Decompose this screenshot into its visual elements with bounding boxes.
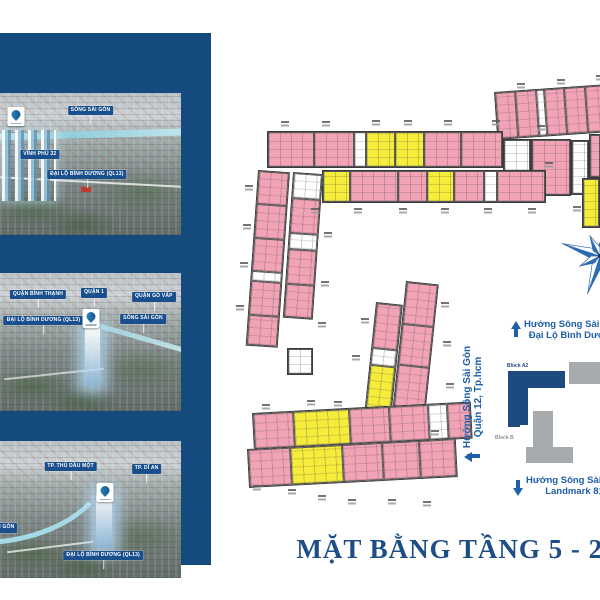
project-tower-render	[85, 328, 99, 386]
unit-label-mark	[596, 75, 600, 81]
unit-label-mark	[444, 120, 452, 126]
map-label-pill: SÔNG SÀI GÒN	[120, 314, 166, 324]
unit-label-mark	[321, 281, 329, 287]
unit-cell	[427, 171, 454, 202]
map-label-pill: SÔNG SÀI GÒN	[0, 523, 17, 533]
unit-label-mark	[388, 499, 396, 505]
map-label-pill: TP. THỦ DẦU MỘT	[44, 462, 97, 472]
unit-label-mark	[484, 208, 492, 214]
map-label-pill: SÔNG SÀI GÒN	[68, 106, 114, 116]
arrow-left-icon	[467, 454, 480, 458]
core-cell	[288, 349, 312, 374]
map-label-pill: QUẬN BÌNH THẠNH	[10, 290, 66, 300]
floorplan-wing	[322, 170, 546, 203]
minimap-label-block-b: Block B	[495, 435, 514, 441]
aerial-photo-river: SÔNG SÀI GÒNVĨNH PHÚ 32ĐẠI LỘ BÌNH DƯƠNG…	[0, 93, 181, 235]
unit-label-mark	[354, 208, 362, 214]
unit-label-mark	[318, 495, 326, 501]
unit-label-mark	[399, 208, 407, 214]
unit-cell	[461, 132, 502, 167]
direction-text: Hướng Sông Sài Gòn	[524, 319, 600, 330]
map-label-pill: QUẬN 1	[81, 288, 107, 298]
unit-cell	[366, 132, 395, 167]
unit-label-mark	[236, 305, 244, 311]
unit-cell	[497, 171, 545, 202]
unit-cell	[382, 441, 422, 480]
unit-cell	[248, 448, 292, 487]
unit-label-mark	[372, 120, 380, 126]
unit-cell	[252, 238, 284, 273]
minimap-block-a2-foot	[508, 419, 520, 427]
unit-label-mark	[281, 121, 289, 127]
direction-text: Landmark 81	[545, 486, 600, 497]
unit-cell	[424, 132, 460, 167]
arrow-down-icon	[516, 480, 520, 493]
floorplan-wing	[283, 172, 323, 320]
project-logo-badge	[8, 107, 25, 126]
project-logo-badge	[82, 309, 99, 328]
unit-label-mark	[537, 125, 545, 131]
unit-label-mark	[307, 400, 315, 406]
core-cell	[292, 173, 322, 200]
unit-label-mark	[573, 206, 581, 212]
unit-cell	[254, 204, 286, 239]
map-label-pill: VĨNH PHÚ 32	[20, 150, 59, 160]
minimap-block-a2-bar	[508, 371, 528, 425]
unit-cell	[590, 135, 600, 177]
map-label-pill: ĐẠI LỘ BÌNH DƯƠNG (QL13)	[4, 316, 84, 326]
unit-label-mark	[352, 355, 360, 361]
unit-label-mark	[311, 208, 319, 214]
floorplan-wing	[287, 348, 313, 375]
unit-cell	[257, 171, 289, 206]
unit-label-mark	[324, 232, 332, 238]
unit-cell	[253, 412, 294, 449]
unit-label-mark	[404, 120, 412, 126]
minimap-block-b-arm	[526, 447, 573, 463]
unit-cell	[398, 323, 433, 368]
unit-label-mark	[318, 322, 326, 328]
unit-label-mark	[262, 404, 270, 410]
page-title: MẶT BẰNG TẦNG 5 - 28	[296, 534, 600, 565]
unit-label-mark	[361, 318, 369, 324]
unit-label-mark	[253, 485, 261, 491]
unit-label-mark	[288, 489, 296, 495]
minimap-label-block-a2: Block A2	[507, 363, 528, 369]
unit-cell	[268, 132, 314, 167]
unit-label-mark	[322, 121, 330, 127]
unit-label-mark	[334, 401, 342, 407]
unit-label-mark	[245, 185, 253, 191]
direction-text: Hướng Sông Sài Gòn	[462, 346, 473, 448]
floorplan-wing	[589, 134, 600, 178]
map-label-pill: ĐẠI LỘ BÌNH DƯƠNG (QL13)	[47, 170, 127, 180]
unit-cell	[290, 198, 320, 235]
unit-label-mark	[441, 302, 449, 308]
unit-label-mark	[348, 499, 356, 505]
unit-label-mark	[240, 262, 248, 268]
project-towers-render	[2, 130, 56, 201]
unit-cell	[372, 303, 402, 350]
direction-note-side: Hướng Sông Sài Gòn Quận 12, Tp.hcm	[453, 304, 493, 500]
compass-rose-icon	[558, 214, 600, 298]
unit-label-mark	[431, 430, 439, 436]
unit-cell	[247, 314, 279, 346]
unit-cell	[349, 407, 390, 444]
unit-cell	[419, 439, 456, 478]
unit-cell	[290, 445, 344, 485]
unit-cell	[394, 365, 429, 410]
unit-cell	[249, 281, 281, 316]
direction-note-top: Hướng Sông Sài Gòn Đại Lộ Bình Dương	[514, 319, 600, 341]
unit-label-mark	[423, 501, 431, 507]
unit-label-mark	[545, 162, 553, 168]
floorplan-wing	[494, 84, 600, 140]
brochure-page: SÔNG SÀI GÒNVĨNH PHÚ 32ĐẠI LỘ BÌNH DƯƠNG…	[0, 0, 600, 600]
unit-label-mark	[492, 120, 500, 126]
unit-cell	[286, 249, 316, 286]
map-label-pill: QUẬN GÒ VẤP	[132, 292, 176, 302]
unit-cell	[395, 132, 424, 167]
unit-label-mark	[443, 341, 451, 347]
aerial-photo-districts: QUẬN BÌNH THẠNHQUẬN 1QUẬN GÒ VẤPĐẠI LỘ B…	[0, 273, 181, 411]
unit-label-mark	[441, 208, 449, 214]
map-label-pill: ĐẠI LỘ BÌNH DƯƠNG (QL13)	[63, 551, 143, 561]
floorplan-wing	[246, 170, 290, 348]
unit-cell	[403, 282, 438, 327]
unit-cell	[398, 171, 427, 202]
direction-text: Quận 12, Tp.hcm	[473, 357, 484, 438]
unit-label-mark	[528, 208, 536, 214]
core-cell	[484, 171, 497, 202]
unit-cell	[584, 85, 600, 132]
direction-text: Hướng Sông Sài Gòn	[526, 475, 600, 486]
project-logo-badge	[96, 483, 113, 502]
direction-note-bottom: Hướng Sông Sài Gòn Landmark 81	[516, 475, 600, 497]
minimap-block-other	[569, 362, 600, 384]
core-cell	[354, 132, 366, 167]
unit-cell	[314, 132, 354, 167]
unit-cell	[342, 443, 384, 482]
location-photos-panel: SÔNG SÀI GÒNVĨNH PHÚ 32ĐẠI LỘ BÌNH DƯƠNG…	[0, 33, 211, 565]
unit-cell	[350, 171, 398, 202]
floorplan-wing	[267, 131, 503, 168]
unit-cell	[293, 409, 351, 447]
unit-label-mark	[243, 224, 251, 230]
arrow-up-icon	[514, 324, 518, 337]
direction-text: Đại Lộ Bình Dương	[529, 330, 600, 341]
core-cell	[289, 232, 318, 251]
unit-cell	[389, 405, 430, 442]
unit-cell	[454, 171, 483, 202]
unit-cell	[323, 171, 350, 202]
map-label-pill: TP. DĨ AN	[132, 464, 162, 474]
unit-cell	[284, 284, 314, 319]
unit-label-mark	[517, 83, 525, 89]
unit-label-mark	[557, 79, 565, 85]
aerial-photo-cities: TP. THỦ DẦU MỘTTP. DĨ ANSÔNG SÀI GÒNĐẠI …	[0, 441, 181, 578]
